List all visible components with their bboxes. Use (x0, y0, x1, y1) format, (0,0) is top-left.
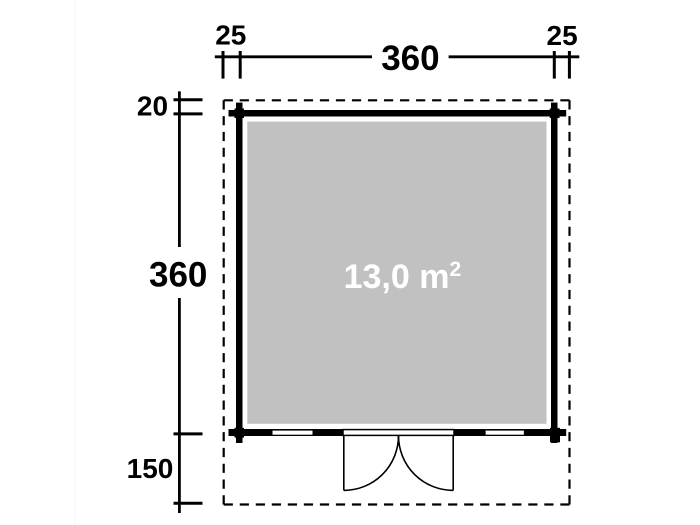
svg-text:360: 360 (149, 255, 207, 294)
svg-text:150: 150 (127, 453, 174, 484)
svg-text:20: 20 (137, 91, 168, 122)
svg-text:360: 360 (381, 39, 439, 78)
svg-text:25: 25 (215, 19, 246, 50)
svg-text:25: 25 (547, 20, 578, 51)
svg-text:13,0 m2: 13,0 m2 (344, 258, 462, 296)
